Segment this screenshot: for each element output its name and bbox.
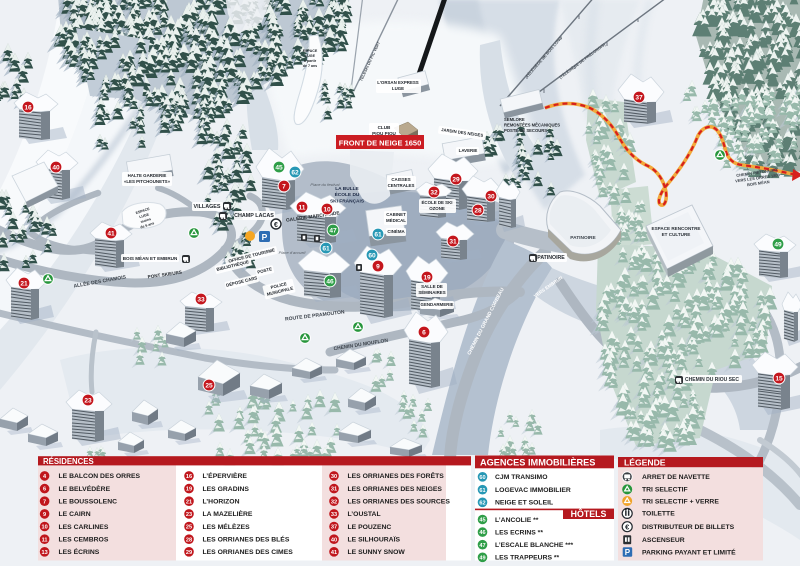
svg-text:25: 25 <box>186 525 192 531</box>
svg-text:RÉSIDENCES: RÉSIDENCES <box>43 457 94 466</box>
svg-text:28: 28 <box>186 537 192 543</box>
svg-text:60: 60 <box>479 475 485 481</box>
svg-text:LES TRAPPEURS **: LES TRAPPEURS ** <box>495 555 560 562</box>
svg-text:LE BOUSSOLENC: LE BOUSSOLENC <box>59 499 118 506</box>
svg-text:16: 16 <box>186 474 192 480</box>
svg-text:23: 23 <box>186 512 192 518</box>
svg-text:LE SILHOURAÏS: LE SILHOURAÏS <box>348 536 401 544</box>
svg-text:41: 41 <box>331 550 337 556</box>
svg-text:49: 49 <box>479 555 485 561</box>
svg-text:LE BALCON DES ORRES: LE BALCON DES ORRES <box>59 473 141 480</box>
svg-text:7: 7 <box>43 499 46 505</box>
svg-text:LE BELVÉDÈRE: LE BELVÉDÈRE <box>59 484 111 493</box>
svg-text:ARRET DE NAVETTE: ARRET DE NAVETTE <box>642 474 710 481</box>
svg-text:LE SUNNY SNOW: LE SUNNY SNOW <box>348 549 406 556</box>
svg-text:P: P <box>625 548 631 557</box>
svg-text:LE CAIRN: LE CAIRN <box>59 511 91 518</box>
svg-text:11: 11 <box>42 537 48 543</box>
svg-text:LES ECRINS **: LES ECRINS ** <box>495 529 543 536</box>
svg-text:61: 61 <box>479 488 485 494</box>
svg-text:TRI SELECTIF: TRI SELECTIF <box>642 487 688 494</box>
svg-text:NEIGE ET SOLEIL: NEIGE ET SOLEIL <box>495 500 553 507</box>
svg-text:HÔTELS: HÔTELS <box>571 508 607 519</box>
svg-text:32: 32 <box>331 499 337 505</box>
svg-text:L’ÉPERVIÈRE: L’ÉPERVIÈRE <box>203 471 248 480</box>
svg-text:47: 47 <box>479 543 485 549</box>
svg-text:LES GRADINS: LES GRADINS <box>203 486 250 493</box>
svg-text:LES ORRIANES DES SOURCES: LES ORRIANES DES SOURCES <box>348 499 451 506</box>
svg-text:AGENCES IMMOBILIÈRES: AGENCES IMMOBILIÈRES <box>480 457 595 468</box>
svg-text:40: 40 <box>331 537 337 543</box>
svg-text:19: 19 <box>186 487 192 493</box>
svg-text:€: € <box>625 523 629 532</box>
svg-text:TRI SELECTIF + VERRE: TRI SELECTIF + VERRE <box>642 498 719 505</box>
svg-text:LES ORRIANES DES FORÊTS: LES ORRIANES DES FORÊTS <box>348 471 445 480</box>
svg-text:LES MÉLÈZES: LES MÉLÈZES <box>203 522 251 531</box>
svg-text:LOGEVAC IMMOBILIER: LOGEVAC IMMOBILIER <box>495 487 571 494</box>
svg-text:37: 37 <box>331 525 337 531</box>
svg-text:LES ORRIANES DES BLÉS: LES ORRIANES DES BLÉS <box>203 535 290 544</box>
svg-text:LES ORRIANES DES NEIGES: LES ORRIANES DES NEIGES <box>348 486 443 493</box>
svg-text:29: 29 <box>186 550 192 556</box>
svg-text:6: 6 <box>43 487 46 493</box>
svg-text:46: 46 <box>479 530 485 536</box>
svg-text:TOILETTE: TOILETTE <box>642 511 675 518</box>
svg-text:LES ORRIANES DES CIMES: LES ORRIANES DES CIMES <box>203 549 294 556</box>
svg-text:PARKING PAYANT ET LIMITÉ: PARKING PAYANT ET LIMITÉ <box>642 547 736 556</box>
svg-text:L’ANCOLIE **: L’ANCOLIE ** <box>495 517 539 524</box>
svg-text:LES ÉCRINS: LES ÉCRINS <box>59 547 100 556</box>
svg-text:LE POUZENC: LE POUZENC <box>348 524 392 531</box>
svg-text:10: 10 <box>41 525 47 531</box>
svg-text:ASCENSEUR: ASCENSEUR <box>642 537 685 544</box>
svg-text:L’HORIZON: L’HORIZON <box>203 499 240 506</box>
svg-text:30: 30 <box>331 474 337 480</box>
svg-text:L’ESCALE BLANCHE ***: L’ESCALE BLANCHE *** <box>495 542 574 549</box>
svg-text:LES CARLINES: LES CARLINES <box>59 524 109 531</box>
svg-text:31: 31 <box>331 487 337 493</box>
svg-text:LA MAZELIÈRE: LA MAZELIÈRE <box>203 509 253 518</box>
svg-text:33: 33 <box>331 512 337 518</box>
svg-text:9: 9 <box>43 512 46 518</box>
svg-text:L’OUSTAL: L’OUSTAL <box>348 511 381 518</box>
svg-text:LES CEMBROS: LES CEMBROS <box>59 537 109 544</box>
svg-text:62: 62 <box>479 500 485 506</box>
svg-text:21: 21 <box>186 499 192 505</box>
svg-text:LÉGENDE: LÉGENDE <box>624 457 666 467</box>
svg-text:CJM TRANSIMO: CJM TRANSIMO <box>495 474 548 481</box>
svg-text:13: 13 <box>41 550 47 556</box>
svg-text:DISTRIBUTEUR DE BILLETS: DISTRIBUTEUR DE BILLETS <box>642 524 735 531</box>
svg-text:45: 45 <box>479 518 485 524</box>
